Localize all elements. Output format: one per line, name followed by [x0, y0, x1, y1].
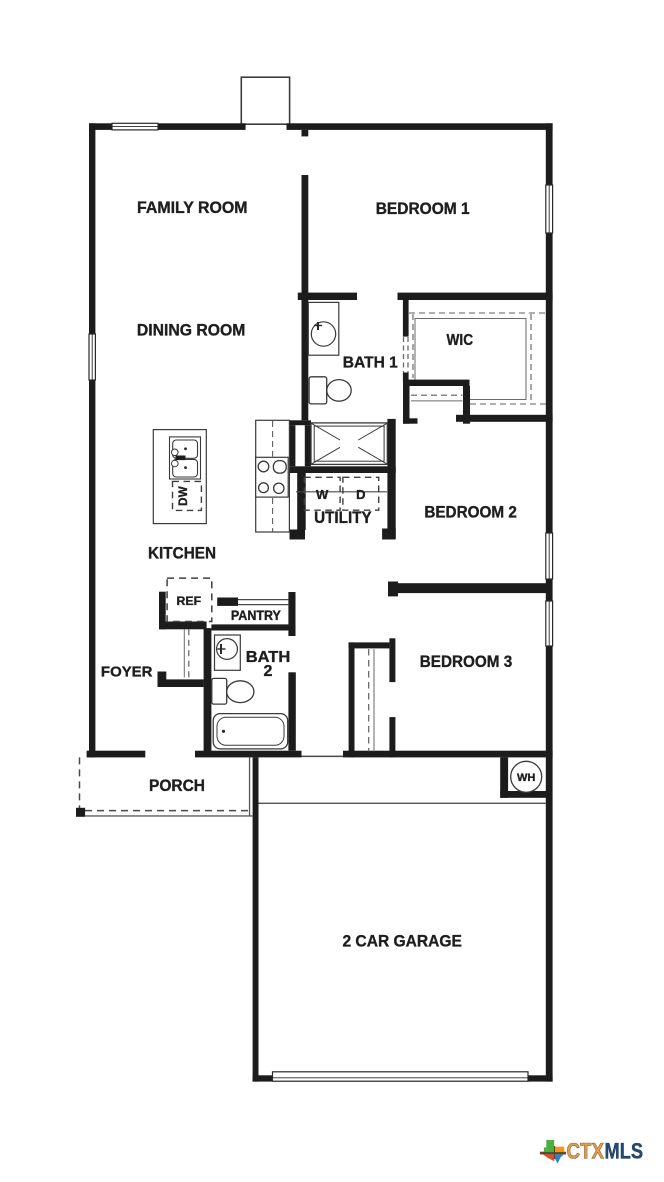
svg-text:BEDROOM 2: BEDROOM 2 [424, 504, 517, 522]
svg-text:PORCH: PORCH [149, 777, 205, 795]
svg-text:PANTRY: PANTRY [231, 608, 281, 623]
svg-text:FOYER: FOYER [101, 664, 153, 680]
svg-text:WH: WH [517, 772, 535, 784]
svg-text:CTX: CTX [567, 1138, 605, 1163]
svg-text:BEDROOM 1: BEDROOM 1 [376, 200, 470, 218]
svg-text:KITCHEN: KITCHEN [148, 545, 216, 563]
svg-text:DW: DW [178, 486, 190, 506]
svg-text:2 CAR GARAGE: 2 CAR GARAGE [342, 932, 462, 951]
svg-text:W: W [316, 487, 329, 502]
svg-text:WIC: WIC [447, 332, 474, 349]
svg-text:2: 2 [264, 663, 273, 680]
svg-text:REF: REF [177, 594, 202, 608]
svg-text:UTILITY: UTILITY [314, 509, 372, 527]
svg-text:D: D [356, 487, 365, 502]
svg-text:MLS: MLS [605, 1138, 644, 1163]
svg-text:BEDROOM 3: BEDROOM 3 [420, 653, 513, 671]
svg-text:DINING ROOM: DINING ROOM [137, 321, 246, 339]
svg-text:FAMILY ROOM: FAMILY ROOM [137, 199, 248, 217]
svg-text:BATH 1: BATH 1 [343, 354, 398, 371]
